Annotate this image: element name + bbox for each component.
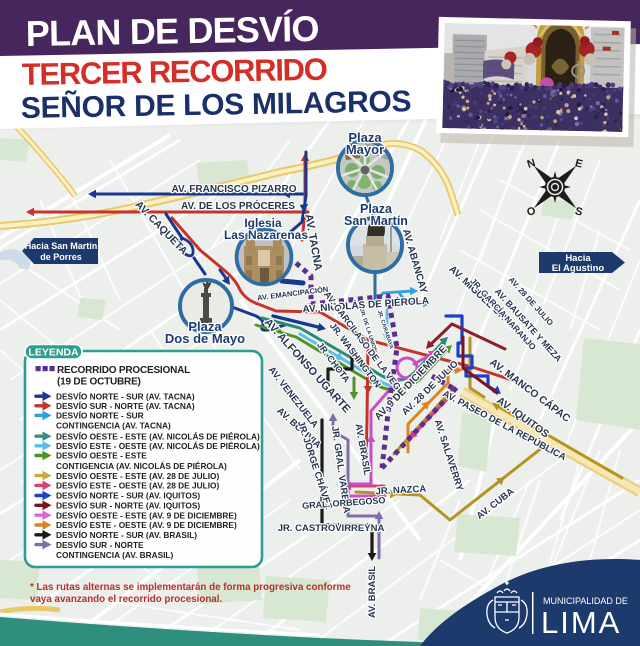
- svg-text:DESVÍO ESTE - OESTE (AV. NICOL: DESVÍO ESTE - OESTE (AV. NICOLÁS DE PIÉR…: [56, 441, 260, 451]
- svg-text:AV. DE LOS PRÓCERES: AV. DE LOS PRÓCERES: [181, 199, 295, 212]
- svg-text:DESVÍO NORTE - SUR (AV. IQUITO: DESVÍO NORTE - SUR (AV. IQUITOS): [56, 491, 200, 501]
- svg-text:LIMA: LIMA: [541, 605, 621, 640]
- svg-text:DESVÍO SUR - NORTE (AV. TACNA): DESVÍO SUR - NORTE (AV. TACNA): [56, 401, 195, 411]
- svg-text:RECORRIDO PROCESIONAL: RECORRIDO PROCESIONAL: [57, 365, 190, 376]
- svg-text:Las Nazarenas: Las Nazarenas: [224, 228, 308, 242]
- svg-text:DESVÍO SUR - NORTE (AV. IQUITO: DESVÍO SUR - NORTE (AV. IQUITOS): [56, 501, 200, 511]
- svg-text:DESVÍO OESTE - ESTE (AV. 28 DE: DESVÍO OESTE - ESTE (AV. 28 DE JULIO): [56, 471, 219, 481]
- svg-text:DESVÍO SUR - NORTE: DESVÍO SUR - NORTE: [56, 540, 144, 550]
- svg-text:DESVÍO ESTE - OESTE (AV. 9 DE: DESVÍO ESTE - OESTE (AV. 9 DE DICIEMBRE): [56, 520, 237, 530]
- svg-text:DESVÍO OESTE - ESTE (AV. NICOL: DESVÍO OESTE - ESTE (AV. NICOLÁS DE PIÉR…: [56, 431, 260, 441]
- svg-text:vaya avanzando el recorrido pr: vaya avanzando el recorrido procesional.: [30, 594, 222, 605]
- svg-text:AV. BRASIL: AV. BRASIL: [367, 566, 378, 618]
- svg-text:AV. FRANCISCO PIZARRO: AV. FRANCISCO PIZARRO: [171, 184, 296, 195]
- svg-text:DESVÍO OESTE - ESTE: DESVÍO OESTE - ESTE: [56, 451, 147, 461]
- svg-text:PLAN DE DESVÍO: PLAN DE DESVÍO: [25, 8, 319, 54]
- svg-text:DESVÍO NORTE - SUR: DESVÍO NORTE - SUR: [56, 411, 144, 421]
- svg-text:LEYENDA: LEYENDA: [28, 347, 79, 359]
- svg-text:El Agustino: El Agustino: [552, 263, 605, 274]
- svg-text:DESVÍO ESTE - OESTE (AV. 28 DE: DESVÍO ESTE - OESTE (AV. 28 DE JULIO): [56, 481, 219, 491]
- svg-text:SEÑOR DE LOS MILAGROS: SEÑOR DE LOS MILAGROS: [21, 84, 412, 125]
- svg-text:JR. CASTROVIRREYNA: JR. CASTROVIRREYNA: [278, 523, 385, 534]
- svg-text:Mayor: Mayor: [346, 142, 384, 157]
- svg-text:TERCER RECORRIDO: TERCER RECORRIDO: [22, 52, 327, 92]
- svg-text:de Porres: de Porres: [40, 252, 82, 262]
- svg-text:Hacia San Martín: Hacia San Martín: [25, 241, 98, 251]
- svg-text:CONTIGENCIA (AV. NICOLÁS DE PI: CONTIGENCIA (AV. NICOLÁS DE PIÉROLA): [56, 461, 227, 471]
- svg-text:CONTINGENCIA (AV. BRASIL): CONTINGENCIA (AV. BRASIL): [56, 550, 173, 560]
- svg-text:CONTINGENCIA (AV. TACNA): CONTINGENCIA (AV. TACNA): [56, 421, 171, 431]
- svg-text:(19 DE OCTUBRE): (19 DE OCTUBRE): [57, 377, 141, 388]
- svg-text:DESVÍO NORTE - SUR (AV. BRASIL: DESVÍO NORTE - SUR (AV. BRASIL): [56, 530, 197, 540]
- svg-text:DESVÍO OESTE - ESTE (AV. 9 DE: DESVÍO OESTE - ESTE (AV. 9 DE DICIEMBRE): [56, 510, 237, 520]
- svg-text:Dos de Mayo: Dos de Mayo: [165, 331, 245, 346]
- svg-text:San Martín: San Martín: [344, 214, 408, 228]
- svg-text:* Las rutas alternas se implem: * Las rutas alternas se implementarán de…: [30, 582, 351, 593]
- svg-text:DESVÍO NORTE - SUR (AV. TACNA): DESVÍO NORTE - SUR (AV. TACNA): [56, 391, 195, 401]
